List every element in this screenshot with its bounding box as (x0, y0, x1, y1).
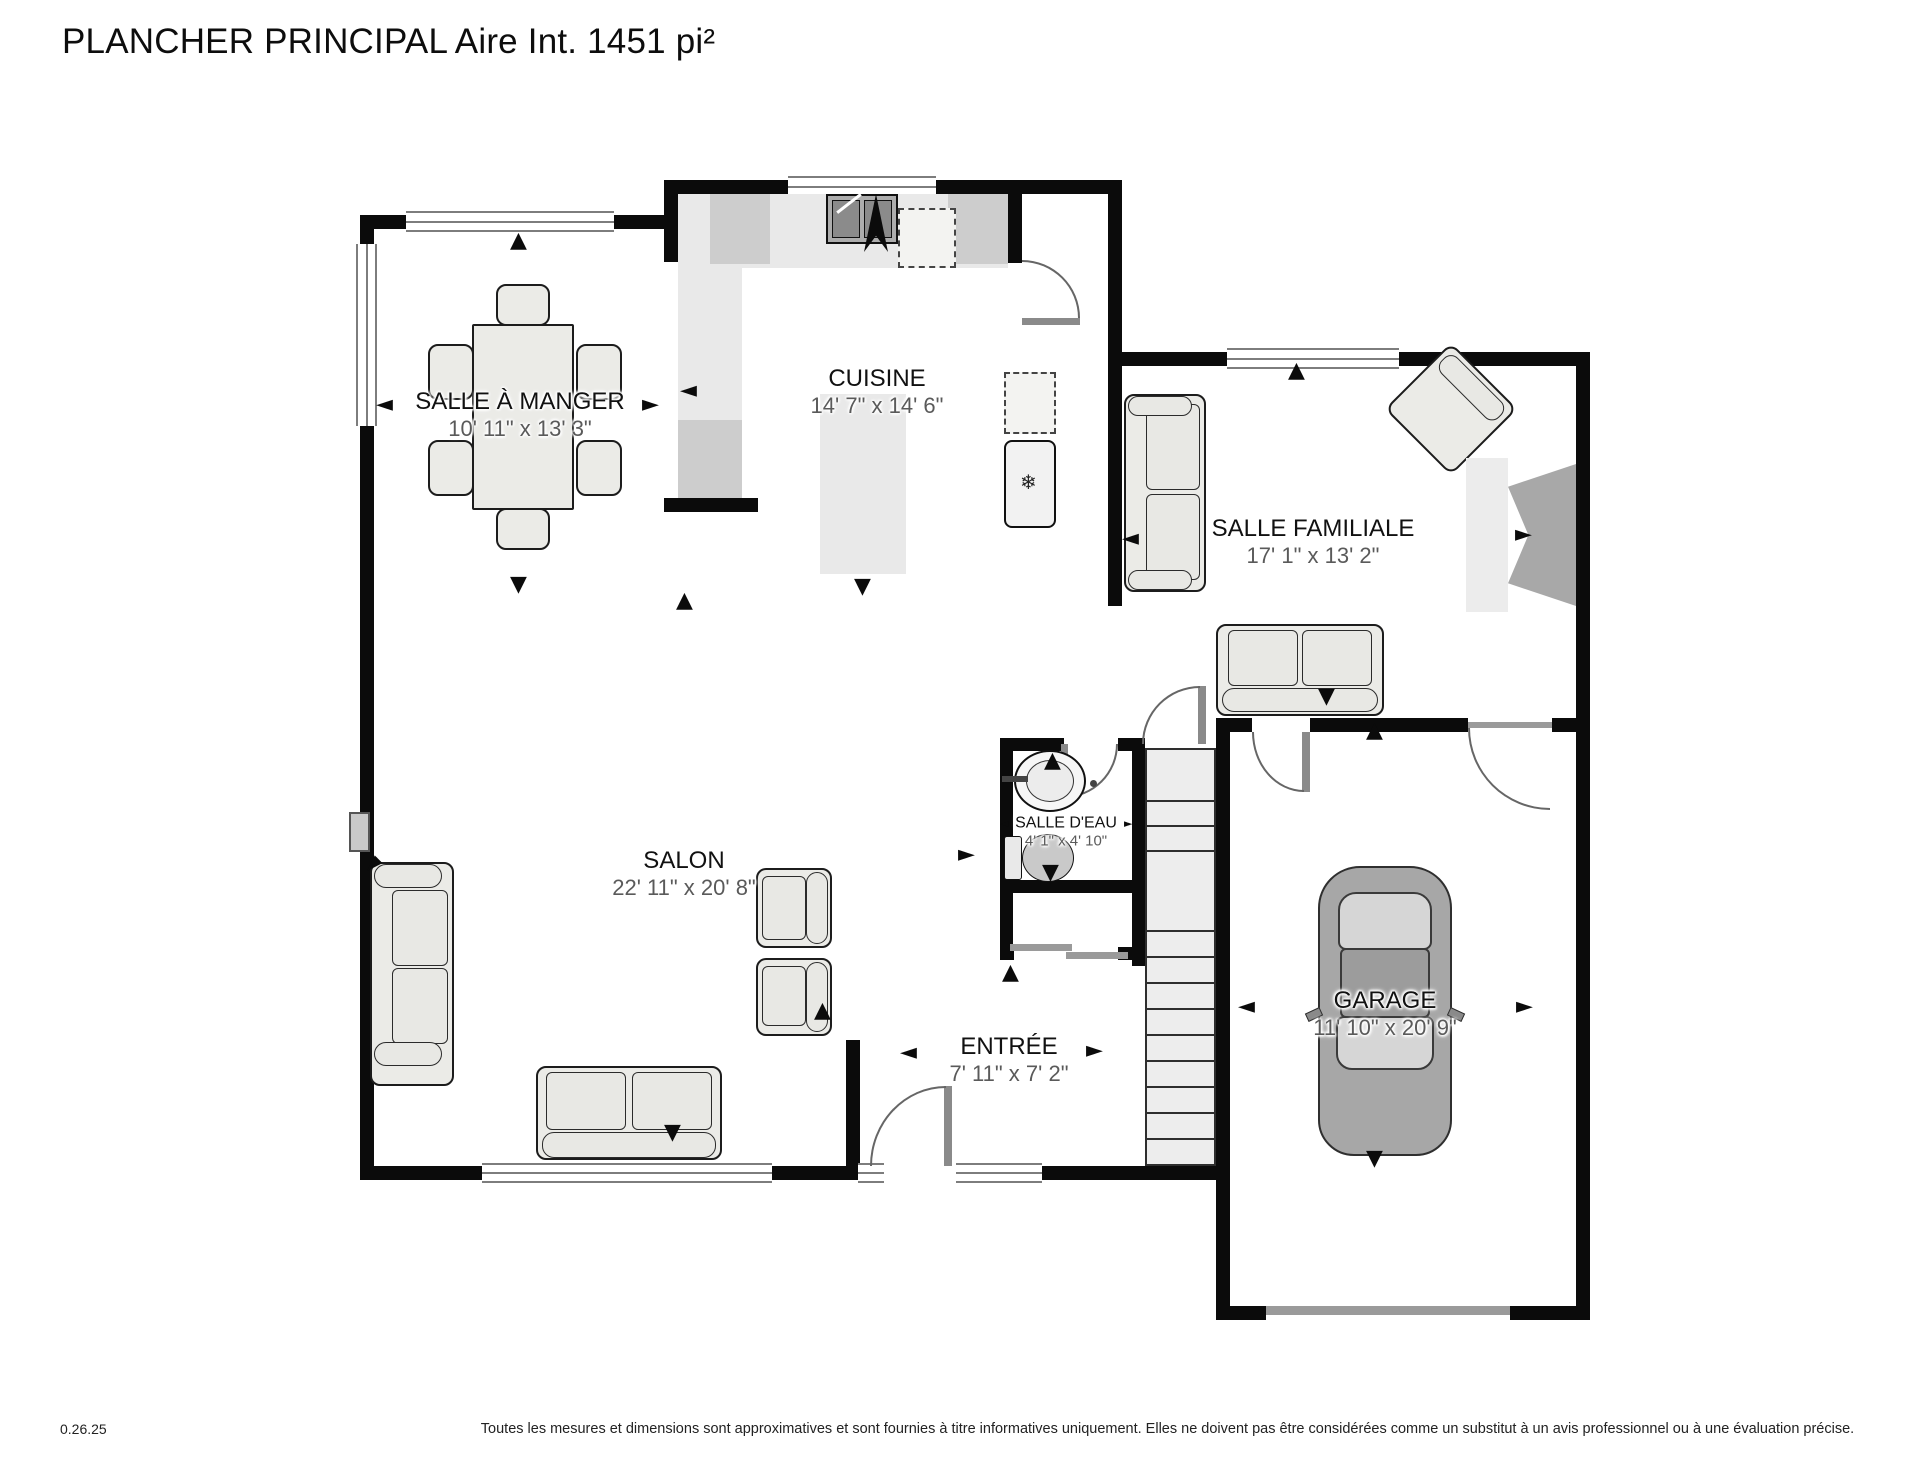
direction-arrow-left-icon: ◄ (1122, 528, 1139, 550)
dining-chair (496, 284, 550, 326)
closet-sliding-door (1010, 944, 1072, 951)
direction-arrow-right-icon: ► (1515, 524, 1532, 546)
room-dims: 10' 11" x 13' 3" (415, 416, 624, 442)
sofa-base (1222, 688, 1378, 712)
sofa-base (542, 1132, 716, 1158)
wall (1216, 718, 1230, 1320)
sofa-cushion (1302, 630, 1372, 686)
stair-step (1147, 956, 1214, 958)
dining-chair (496, 508, 550, 550)
snowflake-icon: ❄ (1020, 473, 1037, 493)
sofa-cushion (1146, 494, 1200, 580)
room-label-entry: ENTRÉE 7' 11" x 7' 2" (949, 1033, 1068, 1087)
direction-arrow-down-icon: ▼ (510, 574, 527, 596)
window (356, 244, 377, 426)
direction-arrow-left-icon: ◄ (900, 1042, 917, 1064)
wall (1000, 880, 1145, 893)
wall (1108, 180, 1122, 366)
dining-chair (428, 440, 474, 496)
kitchen-counter-appliance (710, 194, 770, 264)
staircase (1145, 748, 1216, 1166)
sofa-cushion (392, 890, 448, 966)
stair-step (1147, 1086, 1214, 1088)
direction-arrow-right-icon: ► (1086, 1040, 1103, 1062)
stair-step (1147, 850, 1214, 852)
chair-cushion (762, 966, 806, 1026)
direction-arrow-up-icon: ▲ (1002, 962, 1019, 984)
direction-arrow-right-icon: ► (1516, 996, 1533, 1018)
room-dims: 11' 10" x 20' 9" (1313, 1015, 1456, 1041)
stair-step (1147, 825, 1214, 827)
window (482, 1163, 772, 1183)
sofa-cushion (392, 968, 448, 1044)
direction-arrow-left-icon: ◄ (1238, 996, 1255, 1018)
room-dims: 22' 11" x 20' 8" (612, 875, 755, 901)
room-name: SALLE À MANGER (415, 388, 624, 416)
sofa-cushion (546, 1072, 626, 1130)
room-name: ENTRÉE (949, 1033, 1068, 1061)
direction-arrow-up-icon: ▲ (1288, 360, 1305, 382)
direction-arrow-down-icon: ▼ (664, 1122, 681, 1144)
window-sidelight (954, 1163, 1042, 1183)
room-name: GARAGE (1313, 987, 1456, 1015)
room-label-powder: SALLE D'EAU 4' 1" x 4' 10" (1015, 815, 1117, 850)
room-name: CUISINE (811, 365, 944, 393)
room-dims: 14' 7" x 14' 6" (811, 393, 944, 419)
wall (1132, 738, 1145, 966)
kitchen-island (820, 394, 906, 574)
room-label-salon: SALON 22' 11" x 20' 8" (612, 847, 755, 901)
sofa-armrest (1128, 396, 1192, 416)
kitchen-counter-appliance (948, 194, 1008, 264)
car-windshield (1338, 892, 1432, 950)
dishwasher (898, 208, 956, 268)
floor-plan-page: { "title": "PLANCHER PRINCIPAL Aire Int.… (0, 0, 1920, 1483)
stair-step (1147, 800, 1214, 802)
room-name: SALLE FAMILIALE (1212, 515, 1415, 543)
direction-arrow-up-icon: ▲ (510, 230, 527, 252)
direction-arrow-right-icon: ► (642, 394, 659, 416)
dot (1090, 780, 1097, 787)
room-name: SALLE D'EAU (1015, 815, 1117, 833)
room-label-family: SALLE FAMILIALE 17' 1" x 13' 2" (1212, 515, 1415, 569)
wall (664, 498, 758, 512)
page-title: PLANCHER PRINCIPAL Aire Int. 1451 pi² (62, 22, 715, 62)
direction-arrow-up-icon: ▲ (1044, 750, 1061, 772)
room-label-kitchen: CUISINE 14' 7" x 14' 6" (811, 365, 944, 419)
chair-cushion (762, 876, 806, 940)
direction-arrow-right-icon: ► (958, 844, 975, 866)
direction-arrow-down-icon: ▼ (1366, 1148, 1383, 1170)
disclaimer-text: Toutes les mesures et dimensions sont ap… (420, 1421, 1915, 1437)
pantry-cabinet (1004, 372, 1056, 434)
closet-sliding-door (1066, 952, 1128, 959)
direction-arrow-down-icon: ▼ (854, 576, 871, 598)
sofa-armrest (1128, 570, 1192, 590)
wall-niche (349, 812, 370, 852)
garage-door (1266, 1306, 1510, 1315)
direction-arrow-up-icon: ▲ (1366, 720, 1383, 742)
wall (1576, 352, 1590, 1320)
wall (1506, 1306, 1590, 1320)
direction-arrow-left-icon: ◄ (1000, 818, 1008, 829)
direction-arrow-up-icon: ▲ (676, 590, 693, 612)
direction-arrow-left-icon: ◄ (376, 394, 393, 416)
door-arc (1252, 732, 1304, 792)
stair-step (1147, 1034, 1214, 1036)
direction-arrow-right-icon: ► (1124, 818, 1132, 829)
wall (846, 1040, 860, 1166)
sofa-cushion (1228, 630, 1298, 686)
stair-step (1147, 930, 1214, 932)
wall (664, 180, 678, 262)
wall (1310, 718, 1468, 732)
chair-back (806, 872, 828, 944)
stair-step (1147, 1138, 1214, 1140)
stair-step (1147, 1112, 1214, 1114)
door-arc (1142, 686, 1200, 744)
fireplace-hearth (1466, 458, 1508, 612)
direction-arrow-down-icon: ▼ (1042, 862, 1059, 884)
door-arc (1022, 260, 1080, 318)
wall (1108, 366, 1122, 606)
dining-chair (576, 440, 622, 496)
room-dims: 17' 1" x 13' 2" (1212, 543, 1415, 569)
stair-step (1147, 1008, 1214, 1010)
version-label: 0.26.25 (60, 1421, 107, 1437)
wall (1008, 194, 1022, 263)
direction-arrow-down-icon: ▼ (1318, 686, 1335, 708)
door-arc (1468, 728, 1550, 810)
room-label-garage: GARAGE 11' 10" x 20' 9" (1313, 987, 1456, 1041)
room-dims: 7' 11" x 7' 2" (949, 1061, 1068, 1087)
room-dims: 4' 1" x 4' 10" (1015, 833, 1117, 850)
direction-arrow-up-icon: ▲ (814, 1000, 831, 1022)
sofa-cushion (1146, 404, 1200, 490)
wall (1552, 718, 1590, 732)
door-leaf (1022, 318, 1080, 325)
sink-faucet (1002, 776, 1028, 782)
kitchen-counter-appliance (678, 420, 742, 498)
direction-arrow-left-icon: ◄ (680, 380, 697, 402)
sofa-armrest (374, 1042, 442, 1066)
stair-step (1147, 982, 1214, 984)
door-opening (884, 1163, 956, 1183)
stair-step (1147, 1060, 1214, 1062)
wall (1216, 1306, 1270, 1320)
window (1227, 348, 1399, 369)
room-name: SALON (612, 847, 755, 875)
room-label-dining: SALLE À MANGER 10' 11" x 13' 3" (415, 388, 624, 442)
door-arc (870, 1086, 946, 1166)
